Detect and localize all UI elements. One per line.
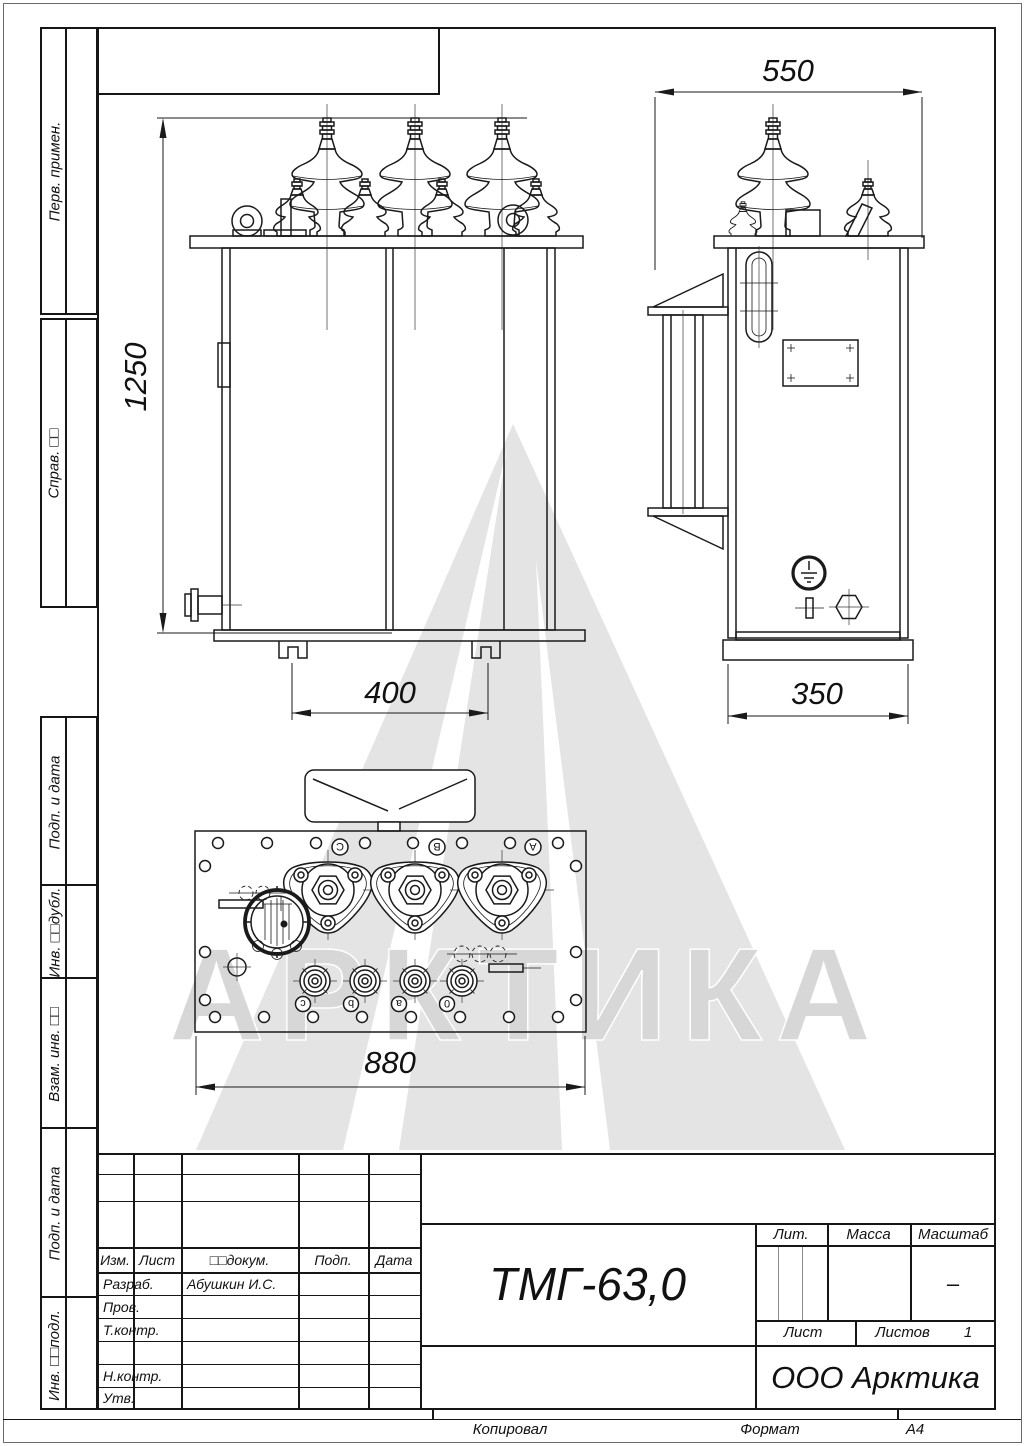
- format-value: А4: [880, 1419, 950, 1439]
- top-stamp-box: [97, 27, 440, 95]
- format-label: Формат: [700, 1419, 840, 1439]
- col-data: Дата: [368, 1249, 420, 1271]
- sidebar-label: Справ. □□: [46, 428, 63, 498]
- row-tkontr: Т.контр.: [99, 1318, 181, 1341]
- drawing-frame: [97, 27, 996, 1410]
- list-label: Лист: [758, 1320, 848, 1345]
- masshtab-label: Масштаб: [910, 1224, 996, 1245]
- row-prov: Пров.: [99, 1295, 181, 1318]
- kopiroval-label: Копировал: [410, 1419, 610, 1439]
- sidebar-label: Перв. примен.: [46, 121, 63, 221]
- col-podp: Подп.: [298, 1249, 368, 1271]
- sidebar-label: Взам. инв. □□: [46, 1007, 63, 1102]
- sidebar-label: Подп. и дата: [46, 755, 63, 849]
- razrab-name: Абушкин И.С.: [183, 1272, 298, 1295]
- sidebar-label: Инв. □□дубл.: [46, 888, 63, 978]
- col-doc: □□докум.: [181, 1249, 298, 1271]
- massa-label: Масса: [827, 1224, 910, 1245]
- sidebar-box: Справ. □□: [40, 318, 98, 608]
- listov-value: 1: [948, 1320, 988, 1345]
- masshtab-value: –: [910, 1247, 996, 1320]
- row-utv: Утв.: [99, 1387, 181, 1409]
- listov-label: Листов: [860, 1320, 945, 1345]
- drawing-sheet: АРКТИКА: [0, 0, 1024, 1446]
- lit-label: Лит.: [755, 1224, 827, 1245]
- col-izm: Изм.: [97, 1249, 133, 1271]
- sidebar-label: Инв. □□подл.: [46, 1310, 63, 1401]
- sidebar-box: Перв. примен.: [40, 27, 98, 315]
- company-name: ООО Арктика: [755, 1345, 996, 1410]
- sidebar-label: Подп. и дата: [46, 1167, 63, 1261]
- sidebar-box: Подп. и дата Инв. □□дубл. Взам. инв. □□ …: [40, 716, 98, 1410]
- col-list: Лист: [133, 1249, 181, 1271]
- row-nkontr: Н.контр.: [99, 1364, 181, 1387]
- designation: ТМГ-63,0: [420, 1223, 755, 1345]
- row-razrab: Разраб.: [99, 1272, 181, 1295]
